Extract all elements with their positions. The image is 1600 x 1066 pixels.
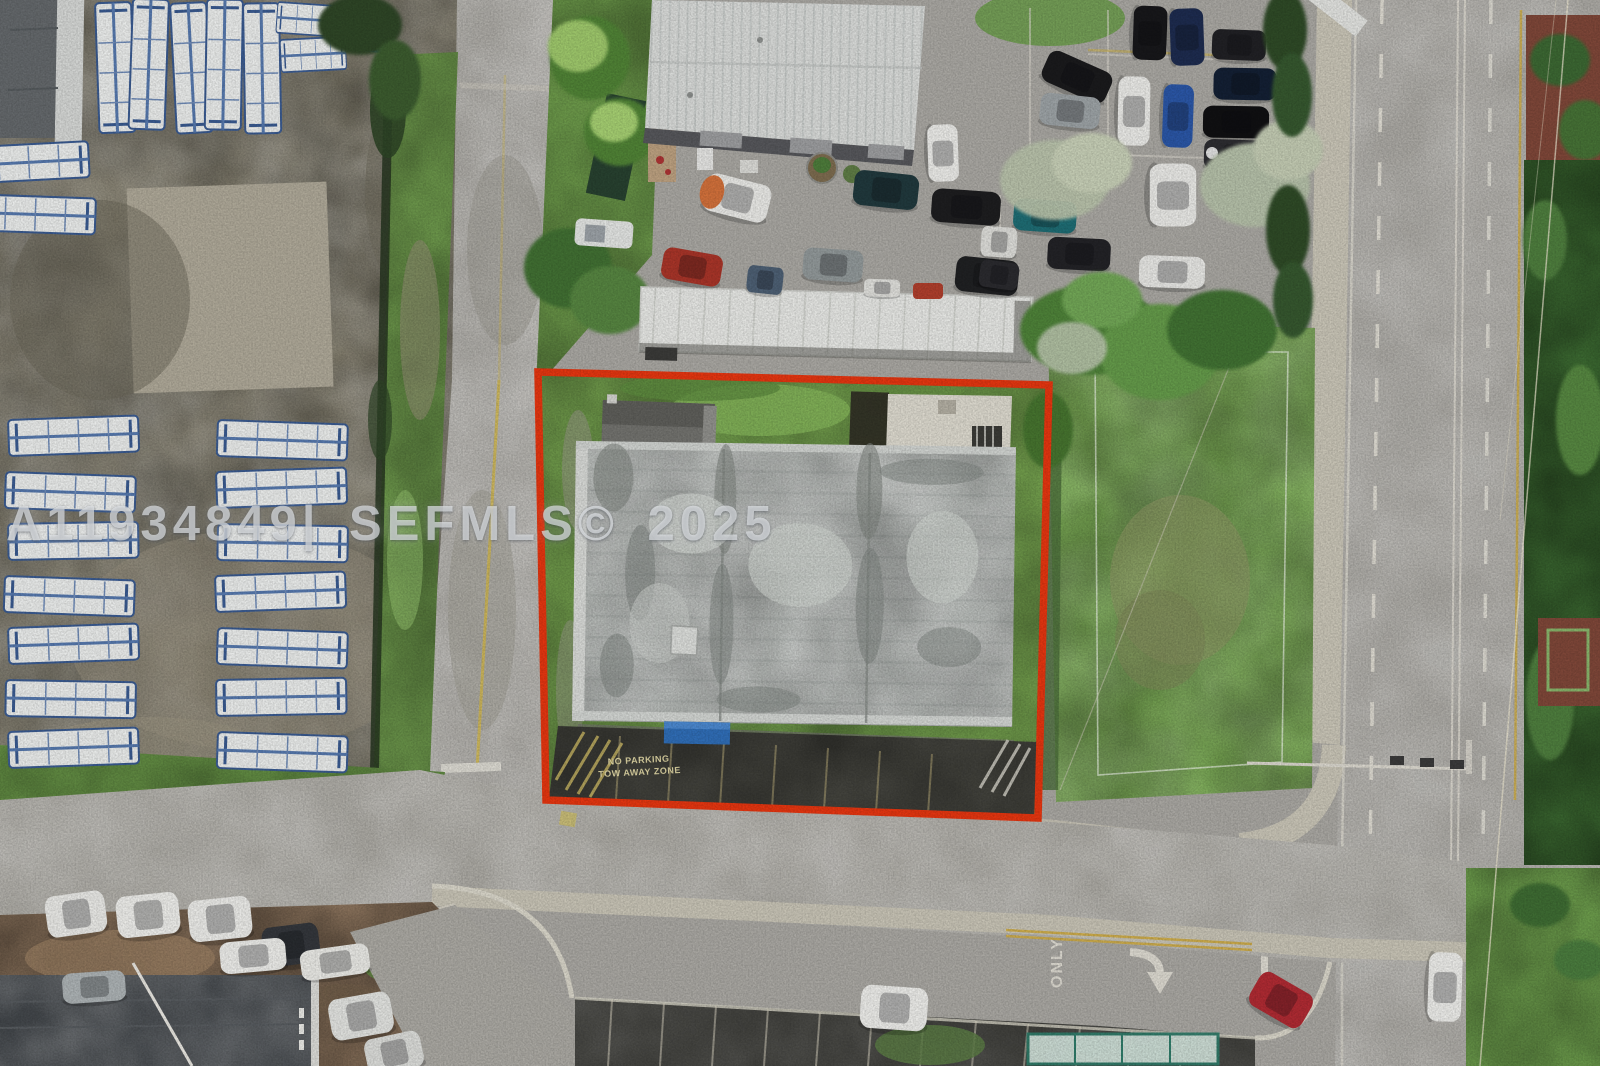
photo-grain	[0, 0, 1600, 1066]
aerial-scene: ONLY	[0, 0, 1600, 1066]
aerial-listing-photo: ONLY	[0, 0, 1600, 1066]
